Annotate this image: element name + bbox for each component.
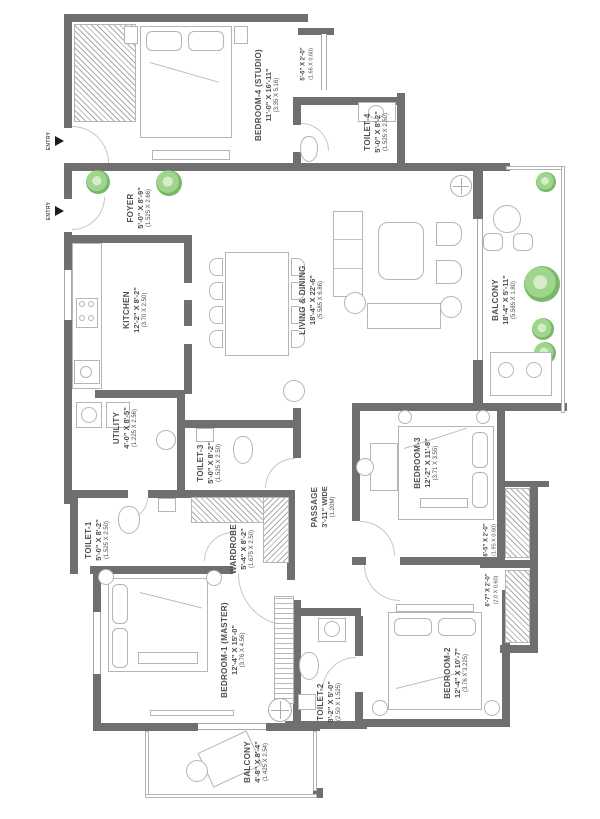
- room-dim: 12'-4" X 10'-7": [453, 647, 463, 699]
- sofa: [333, 211, 363, 297]
- room-metric: (3.76 X 3.225): [463, 647, 471, 699]
- stool: [206, 570, 222, 586]
- side-table: [484, 700, 500, 716]
- tv-console: [367, 303, 441, 329]
- toilet-wc: [118, 506, 140, 534]
- side-table: [344, 292, 366, 314]
- room-dim: 5'-0" X 8'-9": [136, 187, 146, 229]
- room-metric: (3.70 X 2.50): [142, 287, 150, 333]
- room-name: KITCHEN: [122, 287, 132, 333]
- room-label-bedroom3: BEDROOM-3 12'-2" X 11'-8" (3.71 X 3.55): [413, 437, 441, 489]
- room-label-ledge2: 6'-7" X 2'-0" (2.0 X 0.60): [486, 573, 501, 606]
- entry-label: ENTRY: [46, 202, 52, 221]
- wall: [184, 300, 192, 326]
- room-metric: (1.525 X 2.50): [383, 111, 391, 153]
- wall: [500, 645, 538, 653]
- side-table: [476, 410, 490, 424]
- wall: [397, 93, 405, 171]
- side-table: [124, 26, 138, 44]
- washing-machine-drum: [324, 621, 340, 637]
- dining-chair: [209, 306, 223, 324]
- door-arc: [364, 565, 400, 601]
- tv-console: [152, 150, 230, 160]
- pillow: [472, 432, 488, 468]
- balcony-table: [493, 205, 521, 233]
- room-label-toilet1: TOILET-1 5'-0" X 8'-2" (1.525 X 2.50): [84, 519, 112, 561]
- room-name: TOILET-4: [363, 111, 373, 153]
- sink-basin: [298, 694, 316, 710]
- balcony-railing: [145, 731, 149, 797]
- room-dim: 3'-11" WIDE: [320, 486, 330, 528]
- room-name: WARDROBE: [229, 524, 239, 574]
- room-label-balcony-right: BALCONY 18'-4" X 5'-11" (5.585 X 1.80): [491, 275, 519, 324]
- entry-arrow-icon: [55, 206, 64, 216]
- wall: [184, 243, 192, 283]
- desk-chair: [356, 458, 374, 476]
- pillow: [188, 31, 224, 51]
- ceiling-fan-icon: [268, 698, 292, 722]
- balcony-railing: [313, 731, 317, 791]
- room-name: PASSAGE: [310, 486, 320, 528]
- toilet-wc: [300, 136, 318, 162]
- accent-chair: [436, 260, 462, 284]
- room-dim: 5'-6" X 2'-0": [301, 47, 309, 80]
- room-metric: (1.66 X 0.60): [308, 47, 315, 80]
- pillow: [146, 31, 182, 51]
- room-dim: 5'-0" X 8'-2": [206, 442, 216, 484]
- room-metric: (3.35 X 5.16): [274, 49, 282, 141]
- floor-plan: ENTRY ENTRY BEDROOM-4 (STUDIO) 11'-0" X …: [0, 0, 600, 819]
- room-label-toilet2: TOILET-2 8'-2" X 5'-0" (2.50 X 1.525): [316, 681, 344, 723]
- room-name: BEDROOM-4 (STUDIO): [254, 49, 264, 141]
- sofa-cushion-line: [334, 268, 362, 269]
- hob-burner: [79, 301, 85, 307]
- wall: [70, 490, 78, 574]
- room-label-bedroom4: BEDROOM-4 (STUDIO) 11'-0" X 16'-11" (3.3…: [254, 49, 282, 141]
- wall: [352, 557, 366, 565]
- pillow: [438, 618, 476, 636]
- headboard: [396, 604, 474, 612]
- room-name: BEDROOM-1 (MASTER): [220, 602, 230, 698]
- ceiling-fan-icon: [450, 175, 472, 197]
- wall: [100, 723, 198, 731]
- room-dim: 5'-0" X 8'-2": [373, 111, 383, 153]
- toilet-wc: [299, 652, 319, 680]
- room-dim: 12'-2" X 8'-2": [132, 287, 142, 333]
- room-dim: 12'-2" X 11'-8": [423, 437, 433, 489]
- wall: [480, 560, 538, 568]
- sliding-glass-door: [198, 723, 266, 730]
- wall: [95, 390, 177, 398]
- accent-chair: [436, 222, 462, 246]
- room-name: TOILET-3: [196, 442, 206, 484]
- dining-chair: [209, 330, 223, 348]
- plant-icon: [532, 318, 554, 340]
- room-dim: 6'-5" X 2'-0": [484, 523, 492, 556]
- room-metric: (1.525 X 2.66): [146, 187, 154, 229]
- room-metric: (1.95 X 0.60): [491, 523, 498, 556]
- wardrobe-hatch: [263, 497, 289, 563]
- room-dim: 4'-0" X 8'-5": [122, 407, 132, 449]
- dining-table: [225, 252, 289, 356]
- room-metric: (2.50 X 1.525): [336, 681, 344, 723]
- plant-icon: [86, 170, 110, 194]
- balcony-railing: [561, 166, 565, 413]
- room-dim: 6'-7" X 2'-0": [486, 573, 494, 606]
- room-label-ledge1: 6'-5" X 2'-0" (1.95 X 0.60): [484, 523, 499, 556]
- wall: [352, 403, 567, 411]
- balcony-chair: [483, 233, 503, 251]
- room-name: FOYER: [126, 187, 136, 229]
- room-label-passage: PASSAGE 3'-11" WIDE (1.20M): [310, 486, 338, 528]
- wall: [473, 360, 483, 411]
- room-metric: (1.20M): [330, 486, 338, 528]
- wardrobe-hatch: [191, 497, 265, 523]
- stool: [98, 569, 114, 585]
- room-name: UTILITY: [112, 407, 122, 449]
- bench: [138, 652, 198, 664]
- sofa-cushion-line: [334, 239, 362, 240]
- room-label-bedroom1: BEDROOM-1 (MASTER) 12'-4" X 15'-0" (3.76…: [220, 602, 248, 698]
- room-name: TOILET-1: [84, 519, 94, 561]
- entry-label: ENTRY: [46, 132, 52, 151]
- bench: [420, 498, 468, 508]
- room-dim: 18'-4" X 5'-11": [501, 275, 511, 324]
- room-name: BALCONY: [491, 275, 501, 324]
- wall: [70, 163, 510, 171]
- ledge-hatch: [505, 570, 530, 643]
- wall: [505, 481, 549, 487]
- room-label-foyer: FOYER 5'-0" X 8'-9" (1.525 X 2.66): [126, 187, 154, 229]
- dining-chair: [209, 282, 223, 300]
- room-metric: (5.585 X 6.86): [318, 265, 326, 334]
- room-dim: 5'-0" X 8'-2": [94, 519, 104, 561]
- door-arc: [72, 197, 105, 230]
- wall: [360, 719, 510, 727]
- wall: [185, 420, 293, 428]
- room-metric: (1.525 X 2.50): [216, 442, 224, 484]
- room-dim: 4'-8" X 8'-4": [253, 741, 263, 783]
- desk: [370, 443, 398, 491]
- room-metric: (3.76 X 4.56): [240, 602, 248, 698]
- door-arc: [265, 458, 295, 488]
- side-table: [440, 296, 462, 318]
- hob-burner: [79, 315, 85, 321]
- wardrobe-shelf: [274, 596, 294, 704]
- room-label-niche: 5'-6" X 2'-0" (1.66 X 0.60): [301, 47, 316, 80]
- door-arc: [72, 126, 109, 163]
- hob-burner: [88, 301, 94, 307]
- room-name: BALCONY: [243, 741, 253, 783]
- side-table: [398, 410, 412, 424]
- room-label-bedroom2: BEDROOM-2 12'-4" X 10'-7" (3.76 X 3.225): [443, 647, 471, 699]
- dining-chair: [209, 258, 223, 276]
- wall: [70, 490, 128, 498]
- wall: [64, 14, 308, 22]
- window: [321, 34, 327, 90]
- room-metric: (1.425 X 2.54): [263, 741, 271, 783]
- room-dim: 11'-0" X 16'-11": [264, 49, 274, 141]
- window: [93, 612, 101, 674]
- room-metric: (5.585 X 1.80): [511, 275, 519, 324]
- plant-icon: [536, 172, 556, 192]
- pillow: [394, 618, 432, 636]
- pillow: [472, 472, 488, 508]
- room-dim: 8'-2" X 5'-0": [326, 681, 336, 723]
- wall: [64, 14, 72, 128]
- tv-console: [150, 710, 234, 716]
- wall: [293, 408, 301, 458]
- plant-icon: [156, 170, 182, 196]
- coffee-table: [378, 222, 424, 280]
- wall: [355, 616, 363, 656]
- room-name: LIVING & DINING: [298, 265, 308, 334]
- room-label-wardrobe: WARDROBE 5'-4" X 8'-2" (1.675 X 2.50): [229, 524, 257, 574]
- room-label-balcony-bottom: BALCONY 4'-8" X 8'-4" (1.425 X 2.54): [243, 741, 271, 783]
- wall: [293, 105, 301, 125]
- sink-basin: [158, 498, 176, 512]
- wall: [293, 152, 301, 168]
- room-label-living-dining: LIVING & DINING 18'-4" X 22'-6" (5.585 X…: [298, 265, 326, 334]
- window: [64, 270, 72, 320]
- wall: [293, 608, 361, 616]
- hob-burner: [88, 315, 94, 321]
- pillow: [112, 628, 128, 668]
- side-table: [234, 26, 248, 44]
- wall: [184, 344, 192, 394]
- room-metric: (2.0 X 0.60): [493, 573, 500, 606]
- room-dim: 5'-4" X 8'-2": [239, 524, 249, 574]
- sink-basin: [196, 428, 214, 442]
- wall: [72, 235, 192, 243]
- desk-stool: [526, 362, 542, 378]
- sink-basin: [80, 366, 92, 378]
- toilet-wc: [233, 436, 253, 464]
- room-metric: (1.225 X 2.56): [132, 407, 140, 449]
- washing-machine-drum: [81, 407, 97, 423]
- room-label-kitchen: KITCHEN 12'-2" X 8'-2" (3.70 X 2.50): [122, 287, 150, 333]
- balcony-chair: [513, 233, 533, 251]
- wall: [298, 28, 334, 35]
- pillow: [112, 584, 128, 624]
- room-dim: 12'-4" X 15'-0": [230, 602, 240, 698]
- room-metric: (1.525 X 2.50): [104, 519, 112, 561]
- door-arc: [360, 521, 395, 556]
- room-label-toilet4: TOILET-4 5'-0" X 8'-2" (1.525 X 2.50): [363, 111, 391, 153]
- balcony-table: [186, 760, 208, 782]
- room-dim: 18'-4" X 22'-6": [308, 265, 318, 334]
- room-name: BEDROOM-3: [413, 437, 423, 489]
- wall: [177, 390, 185, 494]
- balcony-railing: [145, 794, 317, 798]
- side-table: [372, 700, 388, 716]
- geyser: [156, 430, 176, 450]
- room-name: BEDROOM-2: [443, 647, 453, 699]
- entry-arrow-icon: [55, 136, 64, 146]
- plant-icon: [524, 266, 560, 302]
- round-chair: [283, 380, 305, 402]
- wall: [473, 171, 483, 219]
- ledge-hatch: [505, 488, 530, 558]
- room-label-toilet3: TOILET-3 5'-0" X 8'-2" (1.525 X 2.50): [196, 442, 224, 484]
- room-label-utility: UTILITY 4'-0" X 8'-5" (1.225 X 2.56): [112, 407, 140, 449]
- desk-stool: [498, 362, 514, 378]
- room-metric: (3.71 X 3.55): [433, 437, 441, 489]
- balcony-railing: [506, 166, 562, 170]
- room-metric: (1.675 X 2.50): [249, 524, 257, 574]
- room-name: TOILET-2: [316, 681, 326, 723]
